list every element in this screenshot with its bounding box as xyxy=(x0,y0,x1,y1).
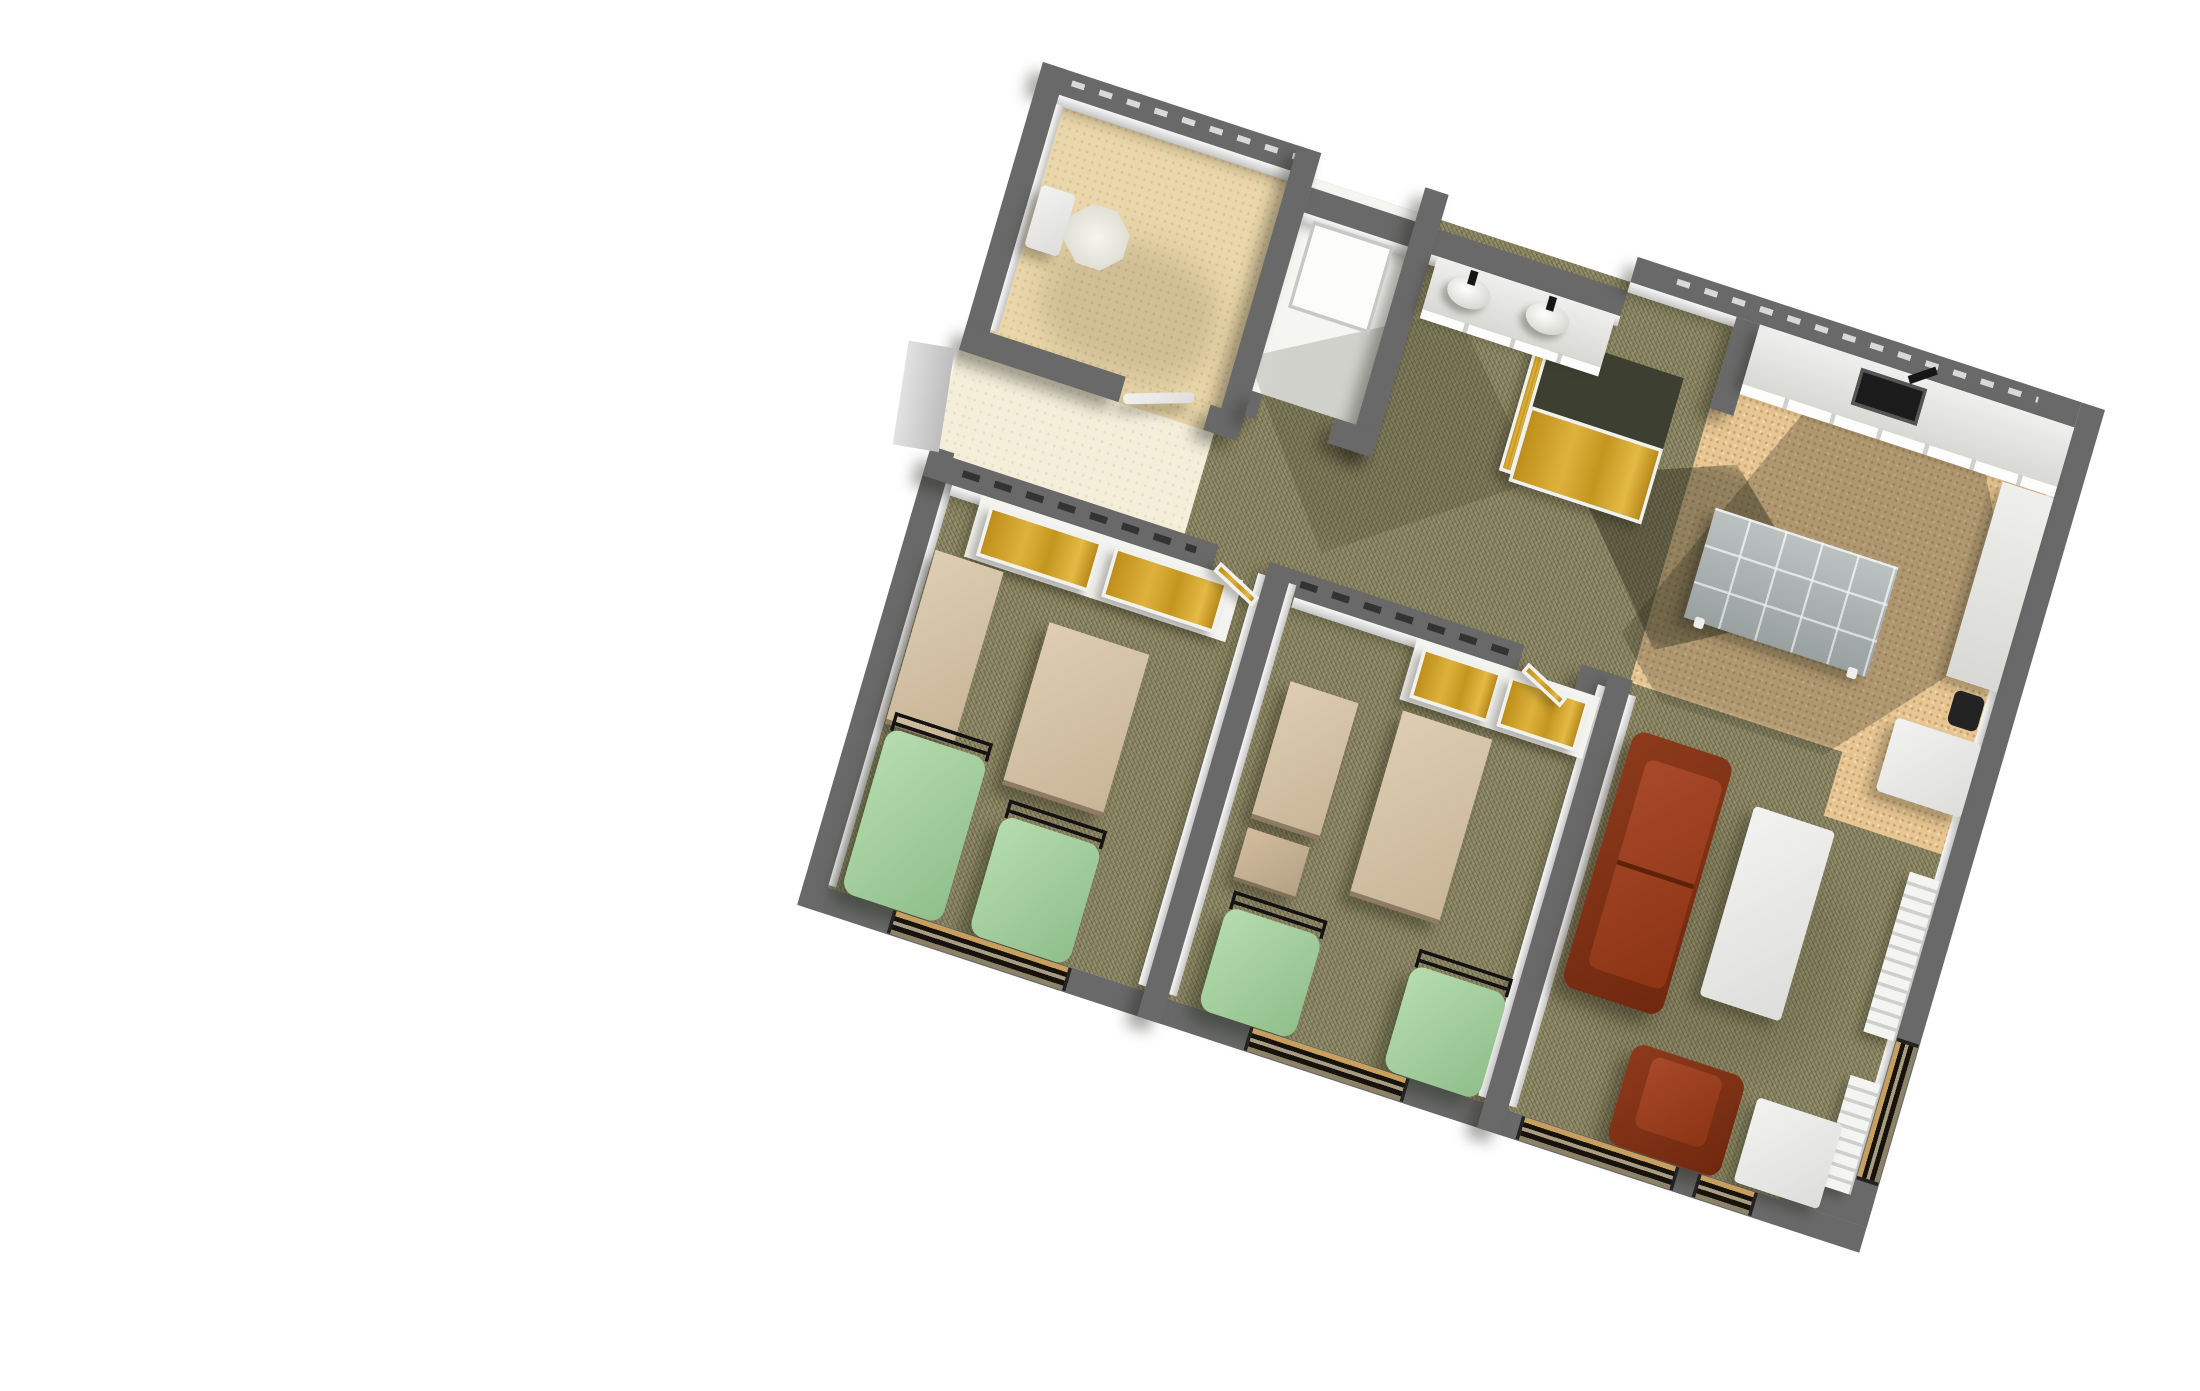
render-canvas xyxy=(0,0,2200,1391)
wc-door-leaf xyxy=(1123,392,1194,404)
floorplan-scene xyxy=(790,62,2105,1278)
